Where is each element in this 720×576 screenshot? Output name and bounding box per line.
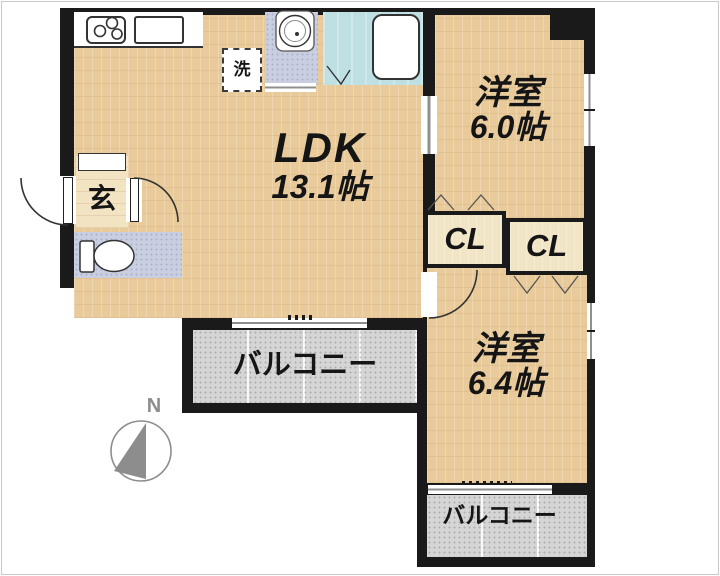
window-bedroom-south-balcony bbox=[428, 485, 552, 494]
washroom-threshold bbox=[265, 83, 316, 92]
floor-plan: 洗 CL CL bbox=[0, 0, 720, 576]
shoe-cabinet bbox=[78, 153, 126, 171]
bedroom-south-door-gap bbox=[421, 272, 437, 317]
washroom bbox=[265, 12, 318, 85]
ldk-size: 13.1帖 bbox=[225, 170, 415, 204]
wall-balcony1-bottom bbox=[182, 403, 427, 413]
window-ldk-rail-mark bbox=[288, 315, 314, 320]
window-bedroom-north-2 bbox=[584, 111, 595, 146]
stove-icon bbox=[86, 16, 126, 44]
ldk-label: LDK 13.1帖 bbox=[225, 126, 415, 204]
window-bedroom-south-1 bbox=[587, 303, 595, 330]
compass-icon bbox=[111, 421, 171, 481]
bedroom-south-size: 6.4帖 bbox=[427, 367, 585, 400]
closet-2-label: CL bbox=[526, 230, 567, 262]
washing-machine-area: 洗 bbox=[222, 48, 262, 92]
hall-door-leaf bbox=[130, 178, 139, 222]
compass-label: N bbox=[142, 395, 166, 418]
bedroom-south-label: 洋室 6.4帖 bbox=[427, 332, 585, 401]
bedroom-south-name: 洋室 bbox=[427, 332, 585, 367]
laundry-label: 洗 bbox=[234, 61, 251, 79]
window-bedroom-south-rail-mark bbox=[462, 481, 512, 485]
ldk-name: LDK bbox=[225, 126, 415, 170]
closet-1-label: CL bbox=[444, 223, 485, 255]
bedroom-north-name: 洋室 bbox=[433, 76, 583, 111]
entrance-label: 玄 bbox=[76, 184, 128, 213]
entrance-door-leaf bbox=[63, 177, 73, 224]
bathtub-icon bbox=[372, 14, 420, 80]
window-bedroom-south-2 bbox=[587, 332, 595, 359]
kitchen-sink-icon bbox=[134, 16, 184, 44]
closet-1: CL bbox=[424, 211, 506, 268]
toilet-room bbox=[74, 232, 182, 278]
bedroom-north-size: 6.0帖 bbox=[433, 111, 583, 144]
balcony-1-label: バルコニー bbox=[193, 350, 417, 380]
bedroom-north-label: 洋室 6.0帖 bbox=[433, 76, 583, 145]
balcony-2-label: バルコニー bbox=[427, 504, 572, 528]
window-bedroom-north-1 bbox=[584, 74, 595, 109]
wall-bedroom-south-west bbox=[417, 317, 427, 567]
closet-2: CL bbox=[506, 218, 587, 275]
